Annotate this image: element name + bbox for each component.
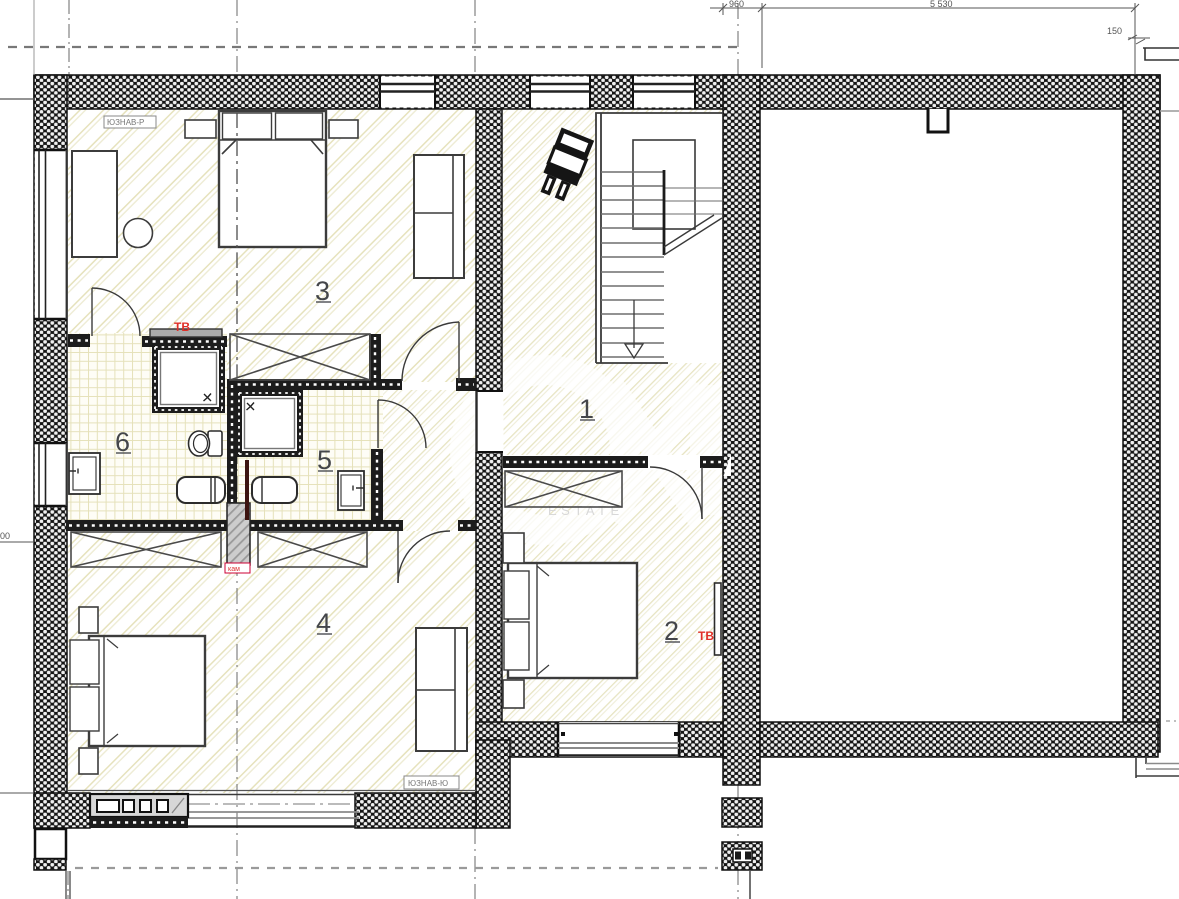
svg-text:ESTATE: ESTATE — [548, 503, 624, 518]
svg-text:ТВ: ТВ — [174, 320, 190, 334]
svg-text:5 530: 5 530 — [930, 0, 953, 9]
svg-text:960: 960 — [729, 0, 744, 9]
svg-text:ЮЗНАВ-Ю: ЮЗНАВ-Ю — [408, 779, 448, 788]
svg-text:ТВ: ТВ — [698, 629, 714, 643]
svg-text:00: 00 — [0, 531, 10, 541]
svg-text:кам: кам — [228, 566, 240, 573]
svg-text:150: 150 — [1107, 26, 1122, 36]
svg-text:ЮЗНАВ-Р: ЮЗНАВ-Р — [107, 118, 144, 127]
